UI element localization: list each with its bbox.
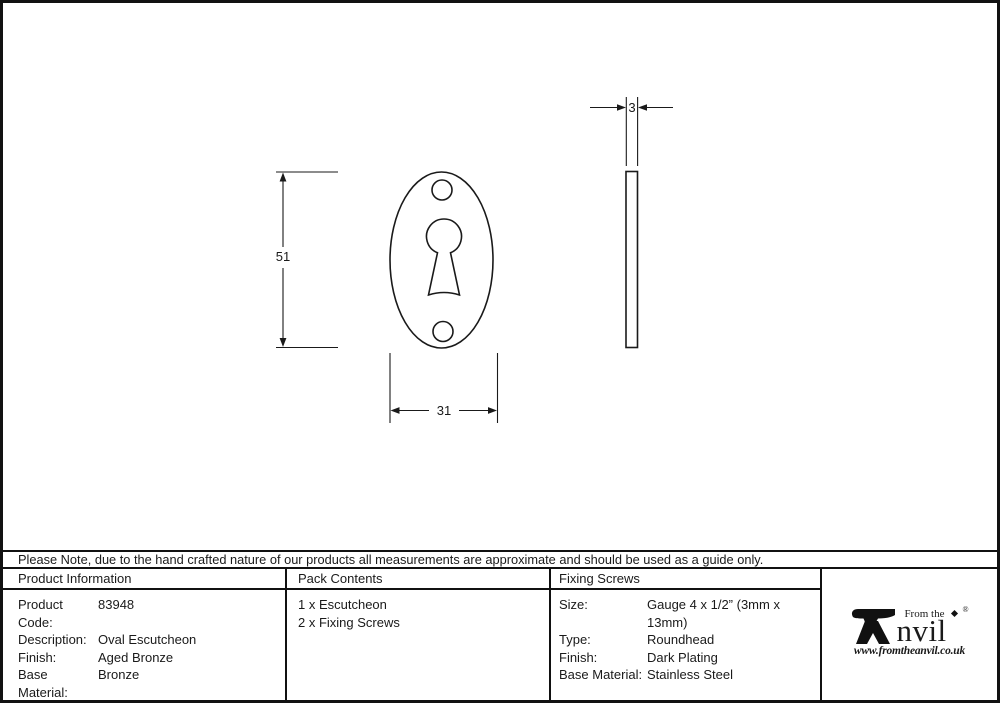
info-block: Please Note, due to the hand crafted nat… [3,550,997,700]
brand-column: From the ® nvil www.fromtheanvil.co.uk [822,569,997,702]
table-row: Type: Roundhead [559,631,820,649]
screw-size-value: Gauge 4 x 1/2” (3mm x 13mm) [647,596,820,631]
finish-value: Aged Bronze [98,649,173,667]
product-code-label: Product Code: [18,596,98,631]
list-item: 2 x Fixing Screws [298,614,549,632]
screw-hole-bottom [433,322,453,342]
screw-finish-label: Finish: [559,649,647,667]
escutcheon-front-view [390,172,493,348]
base-material-value: Bronze [98,666,139,701]
product-spec-sheet: 51 31 3 Please Note, due to the hand c [0,0,1000,703]
screw-material-value: Stainless Steel [647,666,733,684]
table-row: Base Material: Bronze [18,666,285,701]
dim-thickness-label: 3 [628,100,635,115]
screw-material-label: Base Material: [559,666,647,684]
list-item: 1 x Escutcheon [298,596,549,614]
product-information-column: Product Information Product Code: 83948 … [3,569,287,702]
note-bar: Please Note, due to the hand crafted nat… [3,550,997,569]
screw-size-label: Size: [559,596,647,631]
anvil-icon [850,606,896,644]
screw-type-label: Type: [559,631,647,649]
brand-name: nvil [896,617,968,644]
product-code-value: 83948 [98,596,134,631]
note-text: Please Note, due to the hand crafted nat… [18,552,763,567]
description-label: Description: [18,631,98,649]
table-row: Size: Gauge 4 x 1/2” (3mm x 13mm) [559,596,820,631]
finish-label: Finish: [18,649,98,667]
pack-contents-header: Pack Contents [287,569,549,590]
pack-contents-column: Pack Contents 1 x Escutcheon 2 x Fixing … [287,569,551,702]
table-row: Finish: Dark Plating [559,649,820,667]
table-row: Base Material: Stainless Steel [559,666,820,684]
screw-finish-value: Dark Plating [647,649,718,667]
dim-width-label: 31 [437,403,451,418]
info-table: Product Information Product Code: 83948 … [3,569,997,702]
technical-drawing: 51 31 3 [0,0,1000,550]
fixing-screws-column: Fixing Screws Size: Gauge 4 x 1/2” (3mm … [551,569,822,702]
screw-hole-top [432,180,452,200]
escutcheon-side-view [626,172,638,348]
dimension-thickness: 3 [590,97,673,166]
screw-type-value: Roundhead [647,631,714,649]
website-url: www.fromtheanvil.co.uk [854,645,965,657]
base-material-label: Base Material: [18,666,98,701]
dimension-width: 31 [390,353,498,423]
anvil-logo: From the ® nvil www.fromtheanvil.co.uk [850,606,968,657]
description-value: Oval Escutcheon [98,631,196,649]
table-row: Finish: Aged Bronze [18,649,285,667]
dim-height-label: 51 [276,249,290,264]
registered-mark: ® [962,605,968,614]
dimension-height: 51 [276,172,338,348]
table-row: Product Code: 83948 [18,596,285,631]
fixing-screws-header: Fixing Screws [551,569,820,590]
product-information-header: Product Information [3,569,285,590]
table-row: Description: Oval Escutcheon [18,631,285,649]
